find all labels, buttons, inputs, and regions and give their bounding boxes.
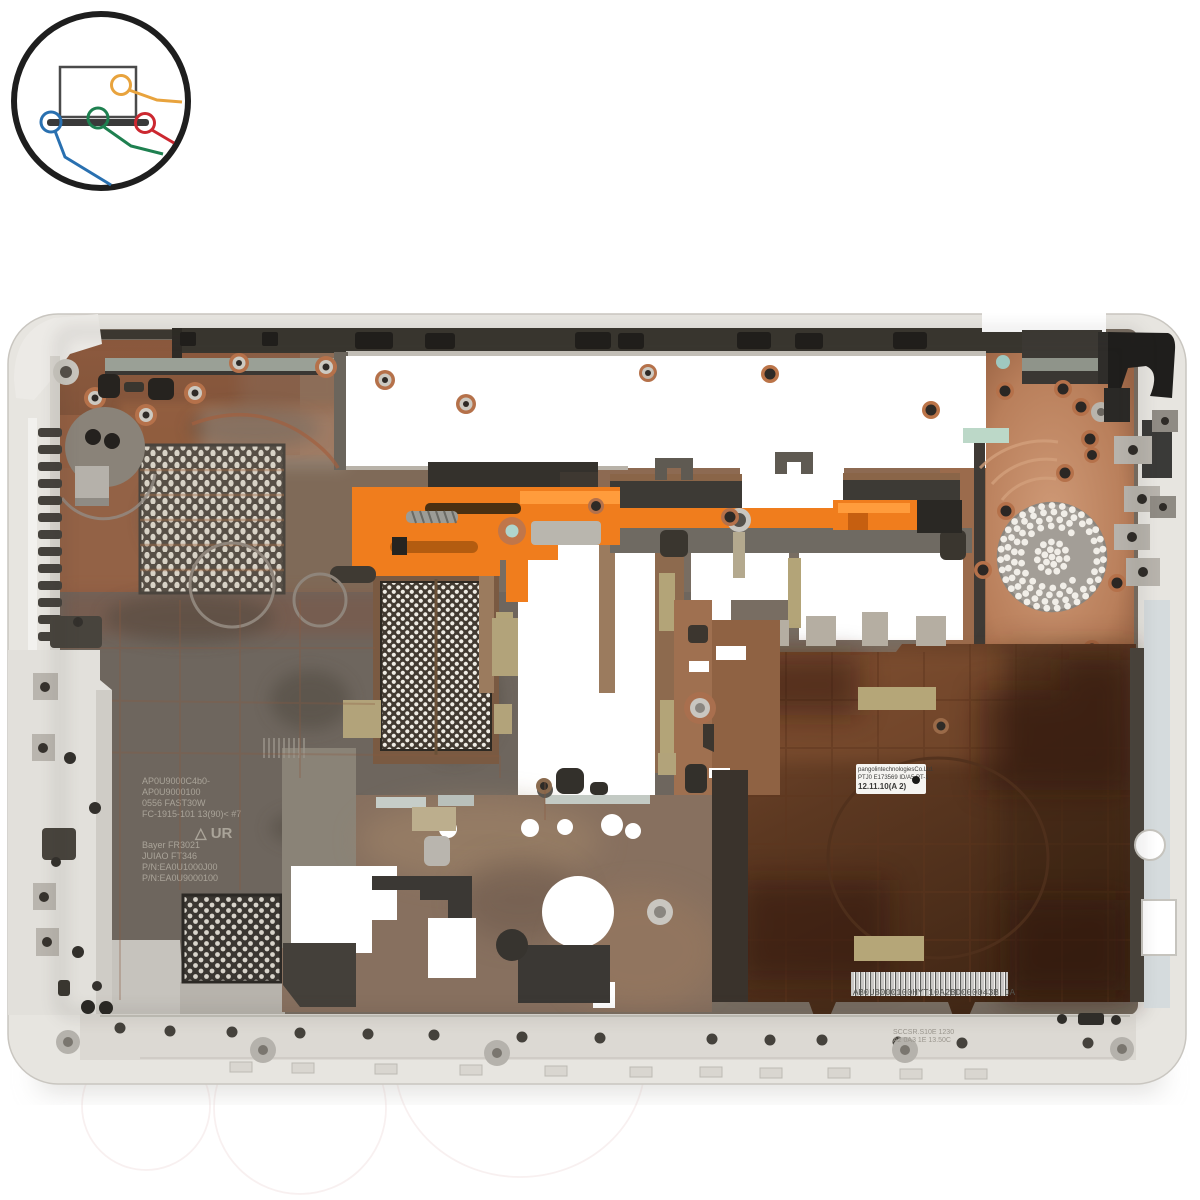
svg-text:AP0U9000100: AP0U9000100 bbox=[142, 787, 201, 797]
svg-text:AB0U8000100HYT10A2BD000043B DA: AB0U8000100HYT10A2BD000043B DA bbox=[853, 988, 1016, 998]
svg-text:FC-1915-101 13(90)< #7: FC-1915-101 13(90)< #7 bbox=[142, 809, 241, 819]
svg-text:pangolintechnologiesCo.Ltd.: pangolintechnologiesCo.Ltd. bbox=[858, 767, 934, 773]
svg-text:AP0U9000C4b0-: AP0U9000C4b0- bbox=[142, 776, 210, 786]
svg-text:12.11.10(A 2): 12.11.10(A 2) bbox=[858, 782, 907, 791]
svg-text:Bayer FR3021: Bayer FR3021 bbox=[142, 840, 200, 850]
svg-text:0556 FAST30W: 0556 FAST30W bbox=[142, 798, 206, 808]
svg-text:△ UR: △ UR bbox=[194, 825, 233, 842]
svg-text:A2 0A3 1E 13.50C: A2 0A3 1E 13.50C bbox=[893, 1037, 951, 1044]
svg-text:SCCSR.S10E 1230: SCCSR.S10E 1230 bbox=[893, 1029, 954, 1036]
svg-text:JUIAO FT346: JUIAO FT346 bbox=[142, 851, 197, 861]
